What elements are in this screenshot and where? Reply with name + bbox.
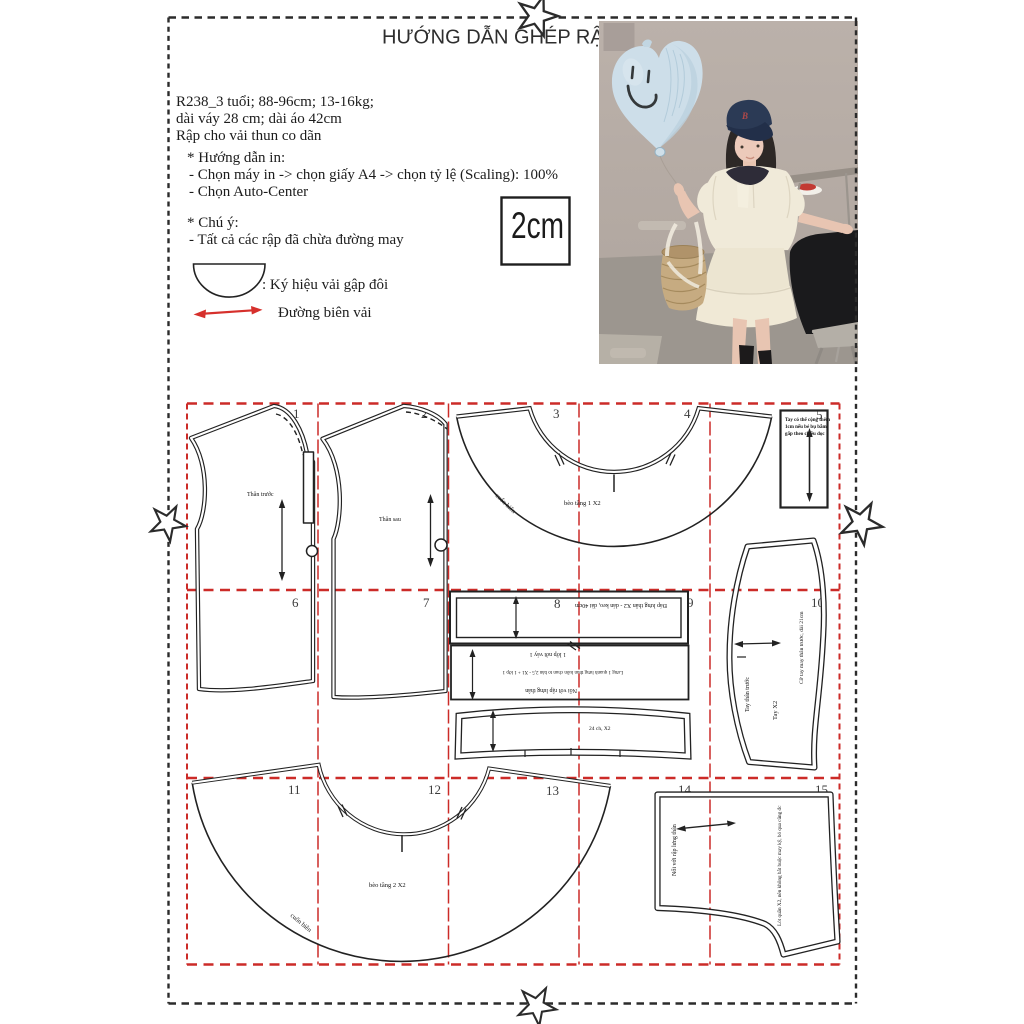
- svg-text:11: 11: [288, 782, 301, 797]
- svg-text:1cm nếu bé bụ bẫm: 1cm nếu bé bụ bẫm: [785, 424, 828, 430]
- svg-text:Tay X2: Tay X2: [772, 701, 779, 720]
- svg-text:Nối với rập lưng thân: Nối với rập lưng thân: [525, 687, 577, 694]
- svg-text:Thân sau: Thân sau: [379, 517, 401, 523]
- svg-text:Thân trước: Thân trước: [247, 492, 274, 498]
- svg-text:bèo tầng 2 X2: bèo tầng 2 X2: [369, 882, 406, 889]
- svg-text:- Tất cả các rập đã chừa đường: - Tất cả các rập đã chừa đường may: [189, 232, 404, 248]
- svg-text:Nối với rập lưng thân: Nối với rập lưng thân: [671, 824, 678, 876]
- svg-text:: Ký hiệu vải gập đôi: : Ký hiệu vải gập đôi: [262, 277, 388, 293]
- svg-text:R238_3 tuổi; 88-96cm; 13-16kg;: R238_3 tuổi; 88-96cm; 13-16kg;: [176, 94, 374, 110]
- svg-text:24 ch, X2: 24 ch, X2: [589, 726, 611, 732]
- svg-text:bèo tầng 1 X2: bèo tầng 1 X2: [564, 500, 601, 507]
- svg-text:4: 4: [684, 406, 691, 421]
- svg-text:7: 7: [423, 595, 430, 610]
- svg-text:- Chọn máy in -> chọn giấy A4: - Chọn máy in -> chọn giấy A4 -> chọn tỷ…: [189, 167, 558, 183]
- svg-text:6: 6: [292, 595, 299, 610]
- svg-text:2cm: 2cm: [511, 205, 564, 246]
- svg-text:- Chọn Auto-Center: - Chọn Auto-Center: [189, 184, 308, 200]
- svg-text:Tay có thể cộng thêm: Tay có thể cộng thêm: [785, 417, 831, 423]
- svg-text:HƯỚNG DẪN GHÉP RẬP: HƯỚNG DẪN GHÉP RẬP: [382, 26, 617, 49]
- svg-text:Tay thân trước: Tay thân trước: [745, 677, 751, 712]
- svg-text:Lót quần X2, nên không bắt buộ: Lót quần X2, nên không bắt buộc may kỹ, …: [776, 805, 783, 926]
- svg-text:* Chú ý:: * Chú ý:: [187, 215, 239, 231]
- svg-text:Cỡ tay may thân trước, dài 21c: Cỡ tay may thân trước, dài 21cm: [799, 611, 805, 684]
- svg-text:Lưng 1 quanh lưng thun luồn ch: Lưng 1 quanh lưng thun luồn chun to bản …: [502, 669, 623, 674]
- svg-text:* Hướng dẫn in:: * Hướng dẫn in:: [187, 150, 285, 166]
- svg-text:3: 3: [553, 406, 560, 421]
- svg-text:Rập cho vải thun co dãn: Rập cho vải thun co dãn: [176, 128, 322, 144]
- svg-text:1 lớp nới váy 1: 1 lớp nới váy 1: [530, 651, 566, 657]
- svg-text:gấp theo chiều dọc: gấp theo chiều dọc: [785, 432, 825, 437]
- svg-text:Đáp lưng thân X2 - dán keo, dà: Đáp lưng thân X2 - dán keo, dài 40cm: [575, 602, 667, 608]
- svg-text:13: 13: [546, 783, 559, 798]
- svg-text:B: B: [741, 111, 748, 121]
- svg-text:dài váy 28 cm; dài áo 42cm: dài váy 28 cm; dài áo 42cm: [176, 111, 342, 127]
- svg-text:12: 12: [428, 782, 441, 797]
- svg-text:Đường biên vải: Đường biên vải: [278, 305, 372, 321]
